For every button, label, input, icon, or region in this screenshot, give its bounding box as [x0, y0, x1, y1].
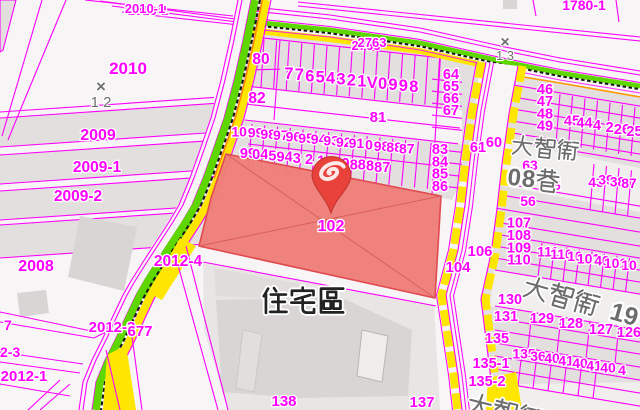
svg-text:128: 128 [559, 316, 583, 332]
svg-text:44: 44 [576, 116, 592, 132]
svg-text:67: 67 [443, 103, 459, 119]
svg-text:87: 87 [374, 160, 390, 176]
svg-text:9: 9 [388, 76, 397, 94]
svg-text:2012-4: 2012-4 [154, 253, 203, 270]
svg-text:2009-1: 2009-1 [73, 159, 122, 176]
svg-text:0: 0 [378, 75, 387, 93]
svg-text:8: 8 [366, 159, 374, 175]
svg-text:2: 2 [305, 152, 313, 168]
svg-text:8: 8 [520, 165, 536, 193]
svg-text:7: 7 [284, 65, 293, 83]
svg-text:9: 9 [399, 77, 408, 95]
svg-text:102: 102 [318, 218, 345, 235]
svg-text:88: 88 [350, 157, 366, 173]
svg-text:6: 6 [305, 67, 314, 85]
svg-text:61: 61 [470, 140, 486, 156]
svg-text:0: 0 [365, 136, 373, 152]
svg-text:2010-1: 2010-1 [125, 1, 165, 16]
svg-text:91: 91 [349, 135, 365, 151]
svg-text:87: 87 [621, 175, 637, 191]
svg-text:104: 104 [445, 259, 471, 276]
svg-text:49: 49 [537, 119, 553, 135]
svg-text:1780-1: 1780-1 [562, 0, 606, 13]
svg-text:80: 80 [252, 51, 269, 68]
svg-text:10: 10 [621, 257, 637, 273]
svg-text:4: 4 [326, 69, 336, 87]
svg-text:4: 4 [593, 118, 601, 134]
svg-text:7: 7 [295, 66, 304, 84]
svg-text:2012-1: 2012-1 [1, 368, 48, 385]
svg-text:135: 135 [485, 331, 509, 347]
svg-text:81: 81 [370, 109, 387, 126]
svg-text:86: 86 [432, 179, 448, 195]
svg-text:25: 25 [626, 124, 640, 140]
svg-text:2009: 2009 [80, 127, 116, 144]
svg-text:87: 87 [399, 140, 415, 156]
svg-text:V: V [367, 74, 378, 92]
svg-text:04: 04 [252, 147, 268, 163]
svg-text:2009-2: 2009-2 [54, 188, 102, 205]
svg-text:129: 129 [530, 311, 554, 327]
svg-text:1 3: 1 3 [496, 48, 514, 63]
svg-text:1: 1 [357, 73, 366, 91]
svg-text:135-2: 135-2 [468, 374, 505, 390]
svg-text:2008: 2008 [18, 258, 54, 275]
svg-text:4: 4 [618, 362, 626, 378]
svg-text:106: 106 [467, 243, 492, 260]
svg-text:110: 110 [507, 253, 530, 269]
svg-text:2-3: 2-3 [0, 344, 20, 360]
svg-text:1 2: 1 2 [91, 94, 112, 111]
svg-text:8: 8 [409, 78, 418, 96]
svg-text:677: 677 [127, 323, 152, 340]
svg-text:82: 82 [248, 90, 265, 107]
svg-text:94: 94 [277, 150, 293, 166]
svg-text:2: 2 [605, 120, 613, 136]
svg-text:131: 131 [494, 309, 518, 325]
svg-text:2010: 2010 [109, 59, 147, 78]
svg-text:3: 3 [293, 151, 301, 167]
svg-text:2763: 2763 [358, 35, 387, 50]
svg-text:40: 40 [600, 360, 616, 376]
svg-text:5: 5 [268, 148, 276, 164]
svg-text:56: 56 [520, 193, 536, 209]
svg-text:5: 5 [316, 68, 325, 86]
svg-text:2: 2 [347, 72, 356, 90]
svg-text:3: 3 [336, 71, 345, 89]
svg-text:137: 137 [409, 394, 434, 410]
svg-text:138: 138 [271, 393, 296, 410]
svg-text:135-1: 135-1 [472, 356, 509, 372]
svg-text:7: 7 [4, 317, 12, 333]
svg-text:60: 60 [486, 135, 502, 151]
svg-text:130: 130 [498, 292, 522, 308]
